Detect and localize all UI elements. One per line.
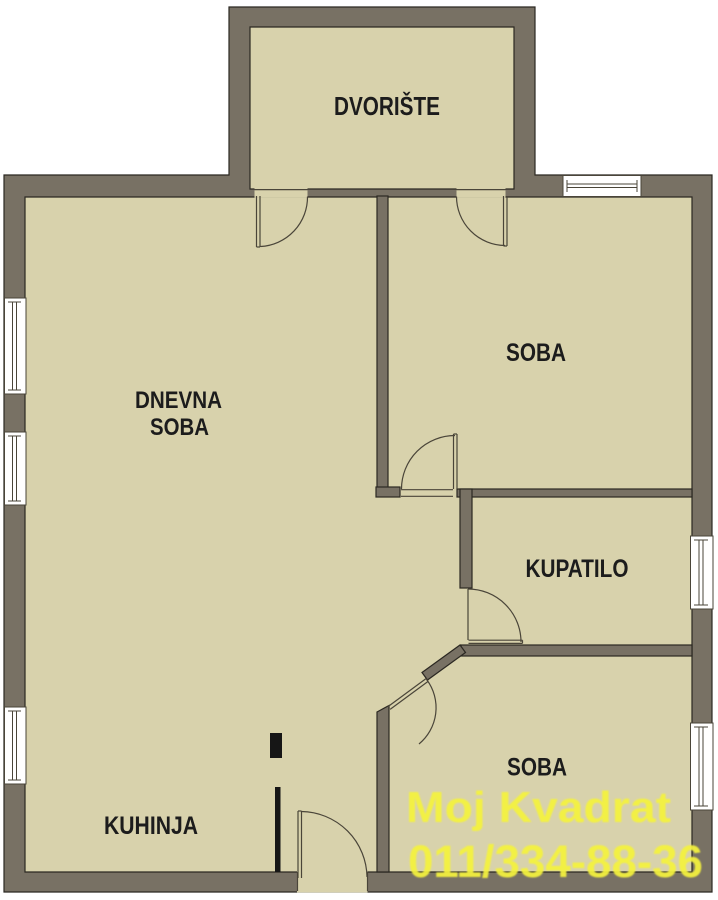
svg-text:KUPATILO: KUPATILO — [526, 555, 629, 583]
svg-text:DVORIŠTE: DVORIŠTE — [334, 91, 440, 121]
svg-text:DNEVNA: DNEVNA — [135, 387, 222, 414]
svg-text:SOBA: SOBA — [150, 414, 209, 441]
svg-text:011/334-88-36: 011/334-88-36 — [408, 836, 703, 887]
svg-text:SOBA: SOBA — [506, 339, 566, 367]
svg-text:SOBA: SOBA — [507, 754, 567, 782]
svg-text:KUHINJA: KUHINJA — [104, 812, 198, 840]
svg-text:Moj Kvadrat: Moj Kvadrat — [406, 783, 671, 832]
